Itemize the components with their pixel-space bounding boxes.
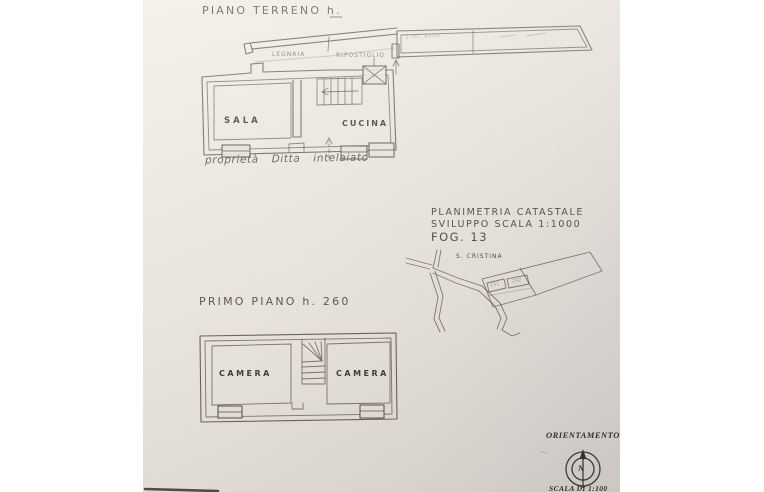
- scale-caption: SCALA DI 1:100: [549, 484, 608, 492]
- cucina-label: CUCINA: [342, 119, 388, 128]
- first-floor-title: PRIMO PIANO h. 260: [199, 295, 351, 308]
- parcel-number-left: 151: [490, 281, 500, 288]
- ground-floor-outline: [202, 58, 396, 159]
- camera-right-label: CAMERA: [336, 369, 389, 378]
- parcel-number-right: 292: [512, 277, 522, 284]
- scanned-floorplan-page: PIANO TERRENO h. LEGNAIA RIPOSTIGLIO 2 m…: [0, 0, 764, 492]
- cadastral-line1: PLANIMETRIA CATASTALE: [431, 207, 584, 218]
- ripostiglio-label: RIPOSTIGLIO: [336, 52, 385, 59]
- sala-label: SALA: [224, 116, 261, 126]
- compass-rose: [541, 449, 600, 488]
- camera-left-label: CAMERA: [219, 369, 272, 378]
- floor-plan-drawing: [0, 0, 764, 492]
- page-edge-shadow: [145, 489, 218, 491]
- cadastral-line2: SVILUPPO SCALA 1:1000: [431, 219, 581, 230]
- cadastral-sheet-number: FOG. 13: [431, 230, 488, 244]
- annex-outline: [244, 26, 592, 74]
- legnaia-label: LEGNAIA: [272, 51, 305, 58]
- locality-label: S. CRISTINA: [456, 253, 503, 260]
- orientation-title: ORIENTAMENTO: [546, 430, 620, 440]
- cadastral-map-sketch: [406, 250, 602, 336]
- compass-north-letter: N: [578, 463, 584, 473]
- ground-floor-title: PIANO TERRENO h.: [202, 4, 342, 17]
